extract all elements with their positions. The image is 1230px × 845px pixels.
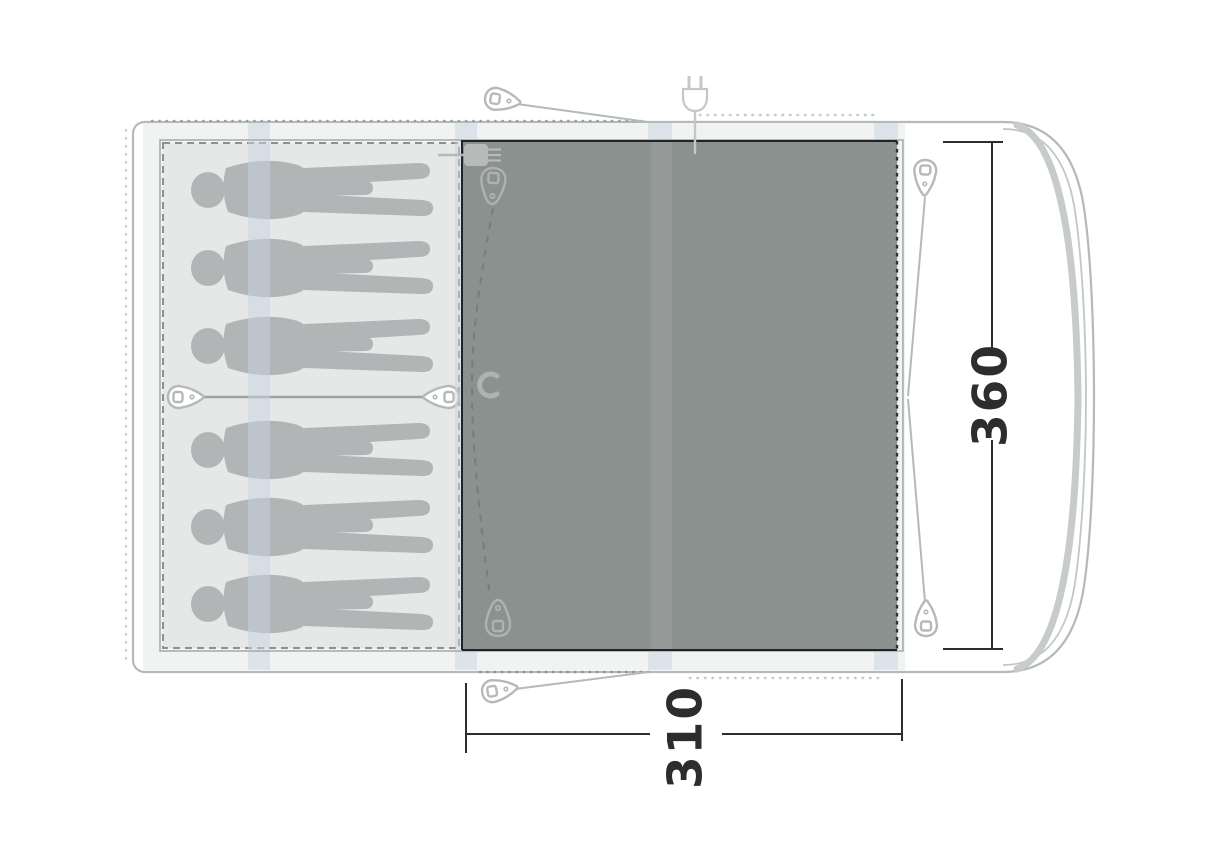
dimension-depth-label: 360	[968, 343, 1015, 447]
sleeping-area	[163, 143, 459, 648]
tent-peg-icon	[481, 676, 520, 703]
floorplan-drawing	[0, 0, 1230, 845]
dimension-width-label: 310	[663, 685, 710, 789]
tent-peg-icon	[484, 86, 523, 113]
tent-floorplan-diagram: 360 310	[0, 0, 1230, 845]
living-area	[462, 141, 897, 650]
